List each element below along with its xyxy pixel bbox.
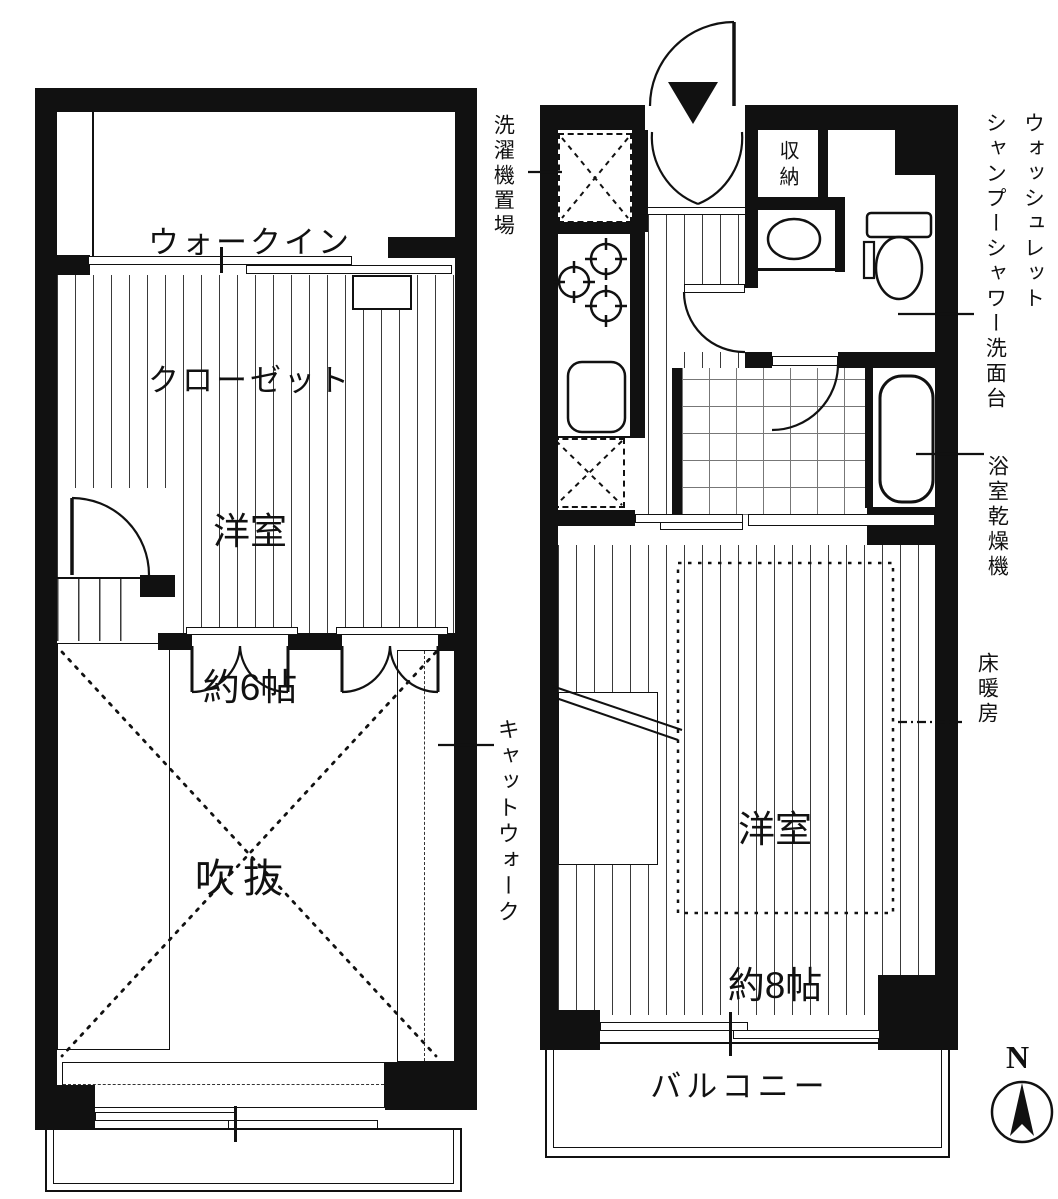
wall-segment bbox=[895, 128, 935, 175]
wall-segment bbox=[818, 128, 828, 197]
walk-in-closet-label-line2: クローゼット bbox=[75, 358, 425, 404]
laundry-machine-space bbox=[558, 133, 632, 223]
washroom-step-bar bbox=[748, 514, 935, 526]
void-label: 吹抜 bbox=[195, 852, 291, 906]
catwalk-bottom-strip bbox=[62, 1062, 385, 1108]
floor-heating-label: 床暖房 bbox=[972, 652, 1000, 727]
window-sash bbox=[95, 1112, 235, 1121]
wall-segment bbox=[540, 510, 635, 526]
wall-segment bbox=[745, 352, 772, 368]
wall-segment bbox=[838, 352, 945, 368]
entrance-door-arc bbox=[650, 22, 734, 106]
room-8jo-label-line1: 洋室 bbox=[675, 804, 875, 856]
wall-segment bbox=[438, 633, 455, 650]
compass-circle bbox=[992, 1082, 1052, 1142]
room-6jo-label-line1: 洋室 bbox=[145, 506, 355, 558]
bathtub-room bbox=[873, 368, 935, 507]
refrigerator-space bbox=[553, 438, 625, 508]
wall-segment bbox=[745, 105, 958, 130]
wall-segment bbox=[835, 197, 845, 272]
genkan-area bbox=[648, 130, 745, 215]
bath-dryer-label: 浴室乾燥機 bbox=[982, 455, 1010, 580]
entrance-marker-icon bbox=[668, 82, 718, 124]
wall-segment bbox=[632, 130, 648, 232]
staircase-right bbox=[558, 692, 658, 865]
laundry-label: 洗濯機置場 bbox=[488, 114, 516, 239]
room-8jo-label-line2: 約8帖 bbox=[675, 960, 875, 1012]
wall-segment bbox=[935, 105, 958, 1050]
genkan-step-line bbox=[648, 207, 745, 215]
catwalk-label: キャットウォーク bbox=[492, 718, 522, 926]
catwalk-right-strip bbox=[397, 650, 455, 1062]
stair-landing bbox=[57, 577, 140, 641]
wall-segment bbox=[540, 105, 558, 1050]
lower-eave-inner-line bbox=[53, 1128, 454, 1184]
compass-n-label: N bbox=[1006, 1036, 1029, 1079]
bathroom-floor bbox=[682, 368, 865, 515]
floorplan-canvas: ウォークイン クローゼット 洋室 約6帖 吹抜 キャットウォーク bbox=[0, 0, 1058, 1199]
wall-segment bbox=[878, 975, 958, 1050]
catwalk-center-dash bbox=[424, 651, 425, 1061]
walk-in-closet-label-line1: ウォークイン bbox=[75, 220, 425, 266]
shampoo-basin-label: シャンプーシャワー洗面台 bbox=[980, 112, 1008, 412]
room-8jo-label: 洋室 約8帖 bbox=[675, 700, 875, 1116]
bathroom-door-leaf bbox=[772, 356, 838, 366]
wall-segment bbox=[867, 507, 958, 545]
storage-label: 収納 bbox=[773, 140, 800, 192]
catwalk-center-dash bbox=[63, 1084, 384, 1085]
wall-segment bbox=[865, 368, 873, 508]
sliding-door bbox=[660, 522, 743, 530]
washroom-door-swing bbox=[680, 285, 753, 352]
kitchen-counter bbox=[552, 232, 632, 438]
compass-needle-icon bbox=[1010, 1083, 1034, 1136]
wall-segment bbox=[558, 222, 648, 232]
wall-segment bbox=[755, 197, 835, 210]
room-6jo-label: 洋室 約6帖 bbox=[145, 402, 355, 818]
wall-segment bbox=[672, 368, 682, 515]
wall-segment bbox=[385, 1062, 477, 1110]
wall-segment bbox=[632, 232, 645, 438]
wall-segment bbox=[35, 1085, 95, 1130]
washlet-label: ウォッシュレット bbox=[1018, 112, 1046, 312]
washbasin-counter bbox=[758, 210, 835, 272]
washbasin-counter-line bbox=[758, 268, 835, 271]
room-6jo-label-line2: 約6帖 bbox=[145, 662, 355, 714]
balcony-label: バルコニー bbox=[630, 1066, 850, 1108]
washroom-door-leaf bbox=[684, 284, 745, 293]
wall-segment bbox=[35, 88, 477, 112]
wall-segment bbox=[35, 88, 57, 1130]
